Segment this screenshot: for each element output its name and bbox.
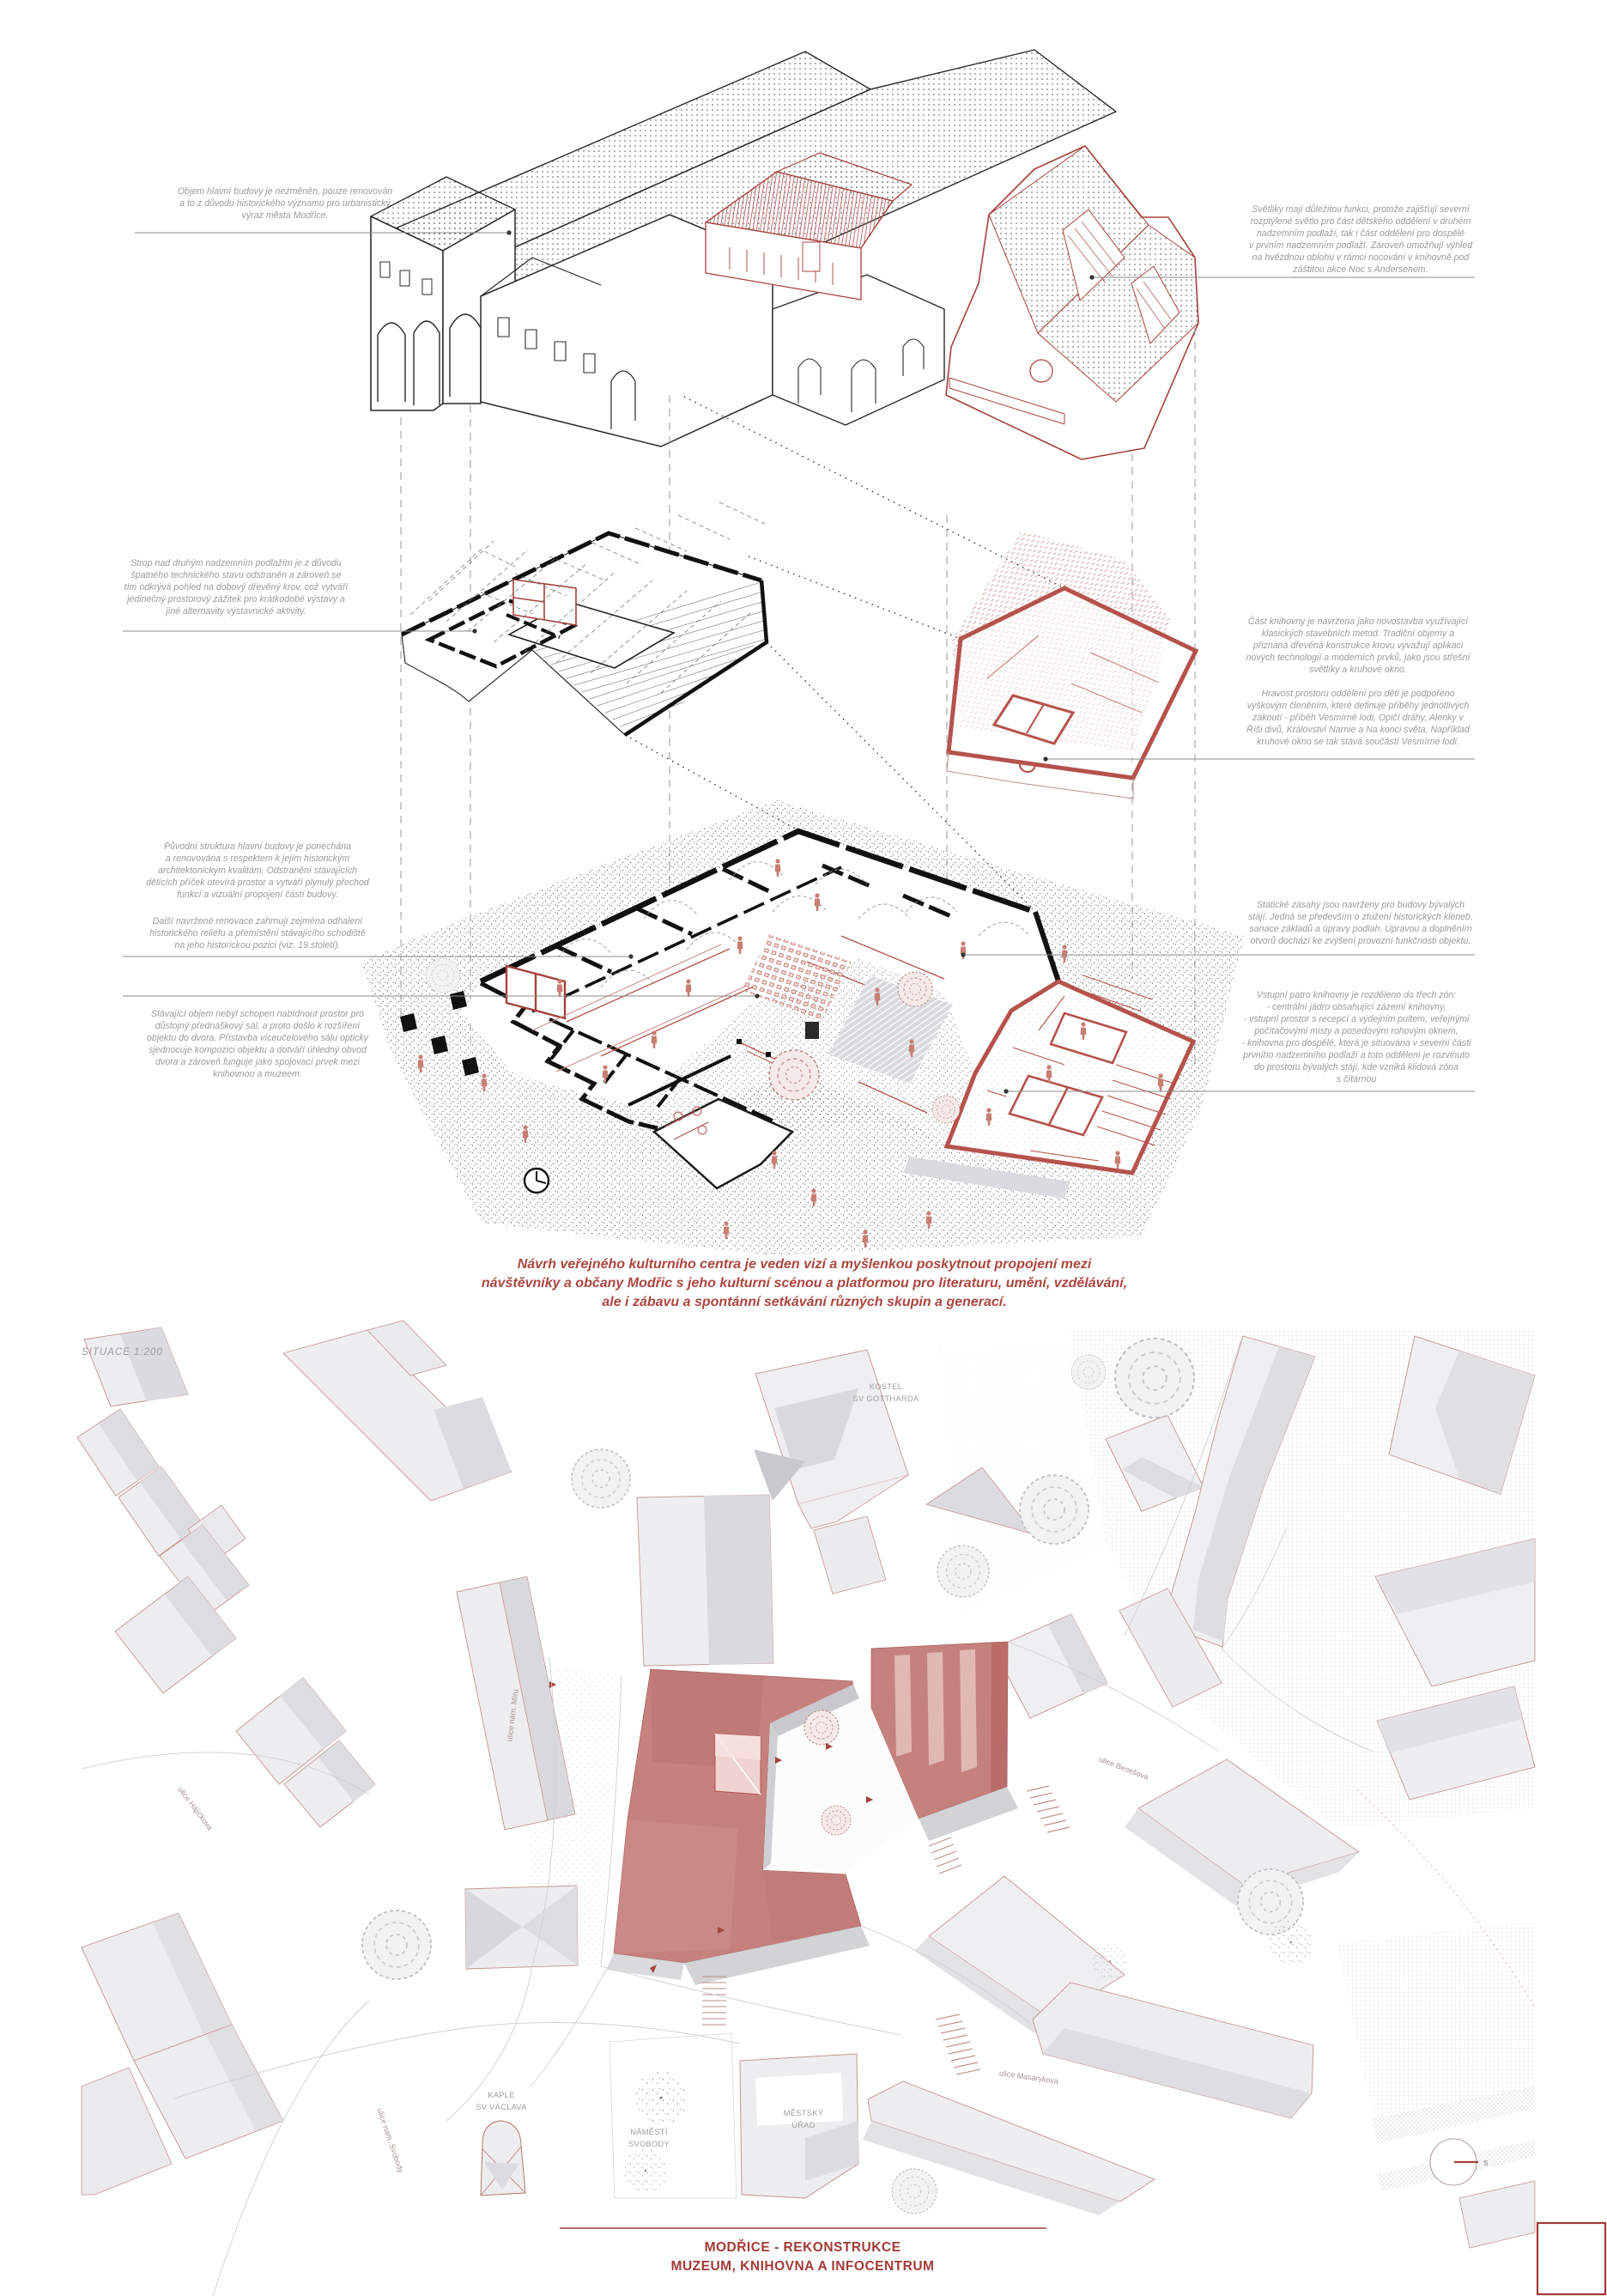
svg-text:MĚSTSKÝ: MĚSTSKÝ xyxy=(784,2109,824,2117)
svg-text:přiznaná dřevěná konstrukce kr: přiznaná dřevěná konstrukce krovu vyvažu… xyxy=(1252,641,1464,651)
svg-text:v prvním nadzemním podlaží. Zá: v prvním nadzemním podlaží. Zároveň umož… xyxy=(1249,240,1473,251)
svg-text:záštitou akce Noc s Andersenem: záštitou akce Noc s Andersenem. xyxy=(1292,264,1428,275)
svg-text:kruhové okno se tak stává souč: kruhové okno se tak stává součástí Vesmí… xyxy=(1257,737,1459,747)
svg-text:NÁMĚSTÍ: NÁMĚSTÍ xyxy=(630,2128,668,2136)
svg-text:funkcí a vizuální propojení čá: funkcí a vizuální propojení částí budovy… xyxy=(177,890,338,900)
svg-text:- knihovna pro dospělé, která: - knihovna pro dospělé, která je situová… xyxy=(1242,1038,1471,1048)
svg-text:Objem hlavní budovy je nezměně: Objem hlavní budovy je nezměněn, pouze r… xyxy=(178,186,392,197)
svg-text:a renovována s respektem k jej: a renovována s respektem k jejím histori… xyxy=(166,853,349,864)
svg-text:ulice Hájíčkova: ulice Hájíčkova xyxy=(176,1785,214,1831)
svg-text:jiné alternavity výstavnické a: jiné alternavity výstavnické aktivity. xyxy=(165,606,306,617)
svg-text:s čítárnou: s čítárnou xyxy=(1337,1074,1377,1084)
svg-text:nových technologií a moderních: nových technologií a moderních prvků, ja… xyxy=(1246,653,1471,663)
svg-text:otvorů dochází ke zvýšení prov: otvorů dochází ke zvýšení provozní funkč… xyxy=(1251,936,1471,946)
svg-text:sjednocuje kompozici objektu a: sjednocuje kompozici objektu a dotváří ú… xyxy=(149,1045,367,1055)
svg-text:Stávající objem nebyl schopen: Stávající objem nebyl schopen nabídnout … xyxy=(151,1009,364,1019)
svg-text:Vstupní patro knihovny je rozd: Vstupní patro knihovny je rozděleno do t… xyxy=(1257,990,1457,1000)
svg-text:architektonickým kvalitám. Ods: architektonickým kvalitám. Odstranění st… xyxy=(158,866,357,876)
svg-text:MODŘICE - REKONSTRUKCE: MODŘICE - REKONSTRUKCE xyxy=(705,2239,901,2255)
svg-text:klasických stavebních metod. T: klasických stavebních metod. Tradiční ob… xyxy=(1262,629,1454,639)
svg-text:Hravost prostoru oddělení pro: Hravost prostoru oddělení pro děti je po… xyxy=(1262,689,1455,699)
svg-text:MUZEUM, KNIHOVNA A INFOCENTRUM: MUZEUM, KNIHOVNA A INFOCENTRUM xyxy=(671,2259,935,2274)
svg-text:SVOBODY: SVOBODY xyxy=(628,2140,670,2148)
svg-text:Říši divů, Království Narnie a: Říši divů, Království Narnie a Na konci … xyxy=(1246,724,1471,735)
svg-text:Část knihovny je navržena jako: Část knihovny je navržena jako novostavb… xyxy=(1248,616,1469,627)
svg-text:na jeho historickou pozici (vi: na jeho historickou pozici (viz. 19.stol… xyxy=(174,940,340,951)
svg-text:SV GOTTHARDA: SV GOTTHARDA xyxy=(853,1394,919,1403)
svg-text:SV VÁCLAVA: SV VÁCLAVA xyxy=(476,2103,527,2111)
svg-text:s: s xyxy=(1483,2158,1489,2168)
svg-text:špatného technického stavu ods: špatného technického stavu odstraněn a z… xyxy=(131,570,342,580)
svg-text:do prostoru bývalých stájí, kd: do prostoru bývalých stájí, kde vzniká k… xyxy=(1254,1062,1458,1072)
svg-text:důstojný přednáškový sál, a pr: důstojný přednáškový sál, a proto došlo … xyxy=(155,1021,361,1031)
svg-text:ÚŘAD: ÚŘAD xyxy=(791,2121,816,2129)
svg-text:Strop nad druhým nadzemním pod: Strop nad druhým nadzemním podlažím je z… xyxy=(130,558,342,568)
svg-text:- vstupní prostor s recepcí a: - vstupní prostor s recepcí a výdejním p… xyxy=(1244,1014,1470,1024)
svg-text:na hvězdnou oblohu v rámci noc: na hvězdnou oblohu v rámci nocování v kn… xyxy=(1252,252,1471,263)
svg-text:jedinečný prostorový zážitek p: jedinečný prostorový zážitek pro krátkod… xyxy=(125,594,345,604)
svg-text:KAPLE: KAPLE xyxy=(488,2091,514,2099)
svg-text:dělících příček otevírá prosto: dělících příček otevírá prostor a vytvář… xyxy=(146,878,370,888)
svg-text:Světliky mají důležitou funkci: Světliky mají důležitou funkci, protože … xyxy=(1252,204,1470,215)
svg-text:- centrální jádro obsahující z: - centrální jádro obsahující zázemí knih… xyxy=(1267,1002,1446,1012)
svg-text:výškovým členěním, které defin: výškovým členěním, které definuje příběh… xyxy=(1247,701,1470,711)
svg-text:dvora a zároveň funguje jako s: dvora a zároveň funguje jako spojovací p… xyxy=(155,1057,361,1067)
svg-text:světlíky a kruhové okno.: světlíky a kruhové okno. xyxy=(1309,665,1407,675)
svg-text:ale i zábavu a spontánní setká: ale i zábavu a spontánní setkávání různý… xyxy=(602,1295,1006,1309)
svg-text:prvního nadzemního podlaží a t: prvního nadzemního podlaží a toto odděle… xyxy=(1242,1050,1470,1060)
svg-text:a to z důvodu historického výz: a to z důvodu historického významu pro u… xyxy=(179,198,391,209)
svg-text:Další navržené renovace zahrnu: Další navržené renovace zahrnují zejména… xyxy=(153,916,363,926)
svg-text:Návrh veřejného kulturního cen: Návrh veřejného kulturního centra je ved… xyxy=(518,1257,1092,1272)
svg-text:Původní struktura hlavní budov: Původní struktura hlavní budovy je ponec… xyxy=(164,841,351,852)
svg-text:návštěvníky a občany Modřic s: návštěvníky a občany Modřic s jeho kultu… xyxy=(482,1276,1127,1291)
svg-text:nadzemním podlaží, tak i část: nadzemním podlaží, tak i část oddělení p… xyxy=(1257,228,1464,239)
svg-text:výraz města Modřice.: výraz města Modřice. xyxy=(242,210,329,221)
svg-text:historického reliéfu a přemíst: historického reliéfu a přemístění stávaj… xyxy=(149,928,366,938)
svg-text:zákoutí - příběh Vesmírné lodi: zákoutí - příběh Vesmírné lodi, Opičí dr… xyxy=(1252,713,1464,723)
svg-text:počítačovými místy a posedovým: počítačovými místy a posedovým rohovým o… xyxy=(1253,1026,1458,1036)
svg-text:Statické zásahy jsou navrženy: Statické zásahy jsou navrženy pro budovy… xyxy=(1257,900,1464,910)
svg-text:sanace základů a úpravy podlah: sanace základů a úpravy podlah. Úpravou … xyxy=(1249,923,1471,934)
svg-text:ulice Masarykova: ulice Masarykova xyxy=(998,2068,1058,2086)
svg-text:knihovnou a muzeem.: knihovnou a muzeem. xyxy=(213,1069,302,1079)
svg-text:tím odkrývá pohled na dobový d: tím odkrývá pohled na dobový dřevěný kro… xyxy=(124,582,349,592)
svg-text:KOSTEL: KOSTEL xyxy=(870,1382,902,1391)
svg-text:rozptýlené světlo pro část dět: rozptýlené světlo pro část dětského oddě… xyxy=(1251,216,1471,227)
svg-text:stájí. Jedná se především o zt: stájí. Jedná se především o ztužení hist… xyxy=(1248,912,1473,922)
svg-text:ulice Benešova: ulice Benešova xyxy=(1098,1755,1150,1782)
svg-text:objektu do dvora. Přístavba ví: objektu do dvora. Přístavba víceučelovéh… xyxy=(147,1033,369,1043)
svg-text:SITUACE 1:200: SITUACE 1:200 xyxy=(82,1347,163,1358)
svg-text:ulice nám. Svobody: ulice nám. Svobody xyxy=(375,2107,405,2174)
